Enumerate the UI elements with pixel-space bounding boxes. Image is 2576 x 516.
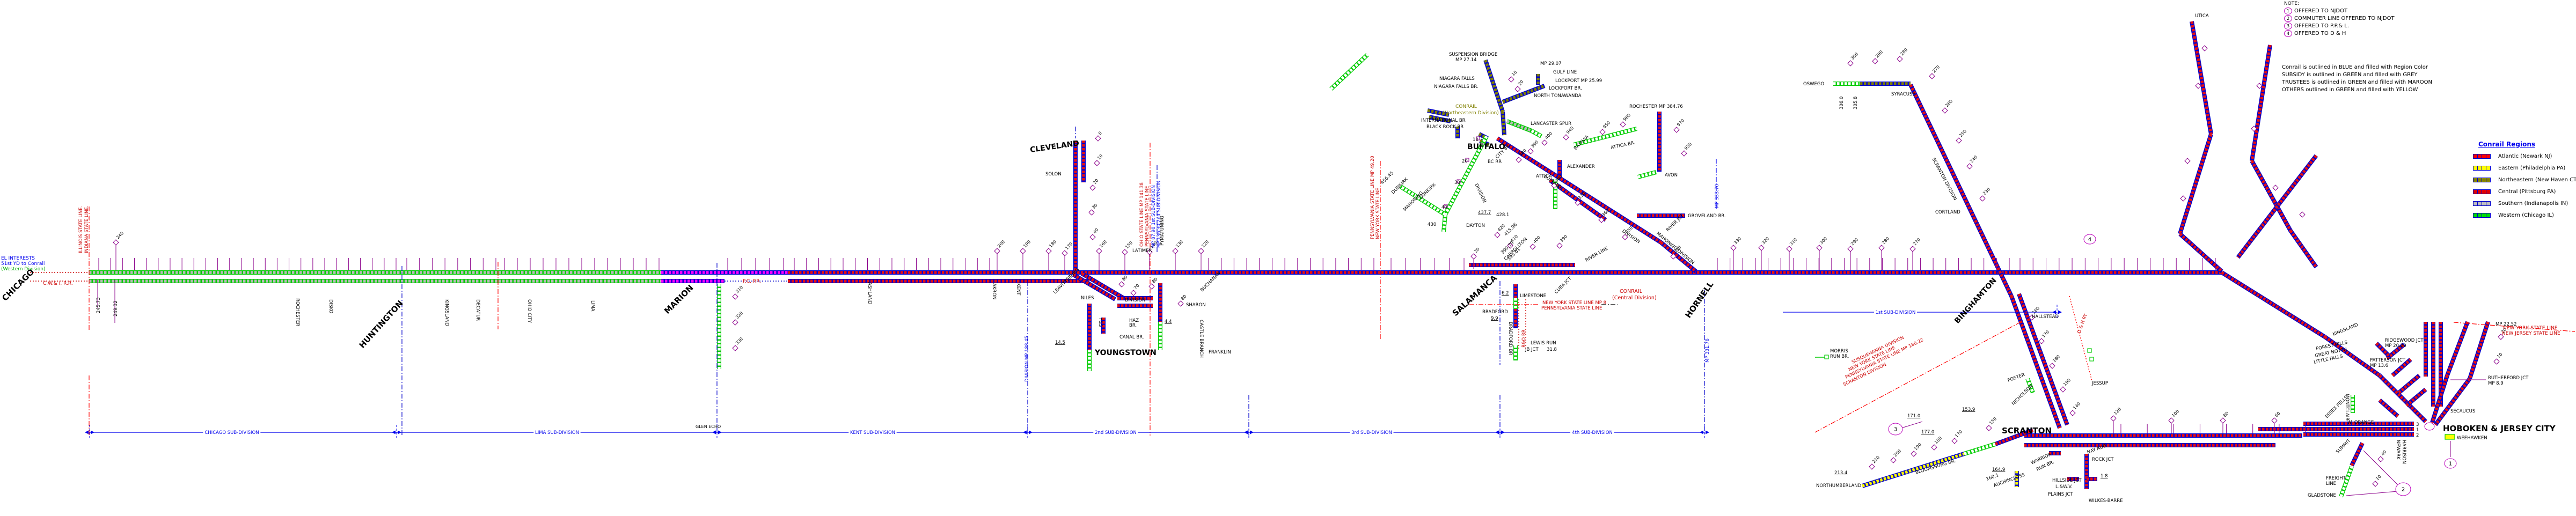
milepost-label: 20 bbox=[1092, 178, 1100, 186]
milepost-diamond bbox=[1471, 254, 1476, 259]
milepost-diamond bbox=[1891, 458, 1896, 463]
milepost-label: 330 bbox=[1733, 236, 1742, 245]
map-label: 177.0 bbox=[1921, 430, 1934, 435]
milepost-diamond bbox=[2050, 363, 2055, 368]
map-label: HORNELL bbox=[1684, 279, 1716, 320]
terminal-box bbox=[2090, 357, 2094, 361]
milepost-diamond bbox=[1869, 464, 1875, 469]
milepost-label: 40 bbox=[1092, 227, 1100, 235]
milepost-label: 390 bbox=[1530, 139, 1539, 149]
milepost-label: 180 bbox=[2052, 354, 2061, 363]
milepost-label: 230 bbox=[1982, 187, 1991, 196]
map-label: 245.73 bbox=[96, 297, 101, 313]
legend-item: Southern (Indianapolis IN) bbox=[2473, 201, 2576, 207]
map-label: AVON bbox=[1665, 173, 1678, 178]
milepost-label: 960 bbox=[1622, 113, 1631, 122]
milepost-label: 180 bbox=[1934, 436, 1943, 445]
map-label: ILLINOIS STATE LINE. bbox=[78, 206, 84, 253]
rail-line bbox=[2399, 375, 2419, 393]
map-label: 20 bbox=[1462, 159, 1468, 164]
milepost-diamond bbox=[2185, 158, 2190, 164]
map-label: NICHOLSON bbox=[2011, 384, 2034, 407]
map-label: NORTH TONAWANDA bbox=[1534, 93, 1582, 99]
milepost-diamond bbox=[2060, 387, 2066, 392]
milepost-diamond bbox=[1620, 122, 1626, 127]
notes-list: 1OFFERED TO NJDOT2COMMUTER LINE OFFERED … bbox=[2284, 8, 2395, 37]
milepost-label: 10 bbox=[1096, 153, 1104, 161]
milepost-label: 290 bbox=[1850, 237, 1859, 246]
map-label: 6.2 bbox=[1502, 291, 1509, 296]
milepost-label: 190 bbox=[1913, 442, 1922, 451]
milepost-label: 200 bbox=[997, 239, 1006, 248]
legend-block: Conrail Regions Atlantic (Newark NJ)East… bbox=[2473, 141, 2576, 224]
terminal-box bbox=[2088, 349, 2091, 352]
map-label: 160.1 bbox=[1986, 473, 2000, 482]
map-label: FRANKLIN bbox=[1209, 350, 1231, 355]
milepost-label: 250 bbox=[1958, 129, 1967, 138]
map-label: BLACK ROCK BR bbox=[1426, 124, 1463, 130]
map-label: WEEHAWKEN bbox=[2457, 436, 2487, 441]
map-label: (Western Division) bbox=[1, 267, 45, 272]
map-label: MP 331.76 bbox=[1705, 338, 1710, 363]
milepost-label: 300 bbox=[1850, 51, 1859, 61]
map-label: CLEVELAND bbox=[1029, 139, 1080, 154]
legend-item: Central (Pittsburg PA) bbox=[2473, 189, 2576, 195]
note-ref-circle bbox=[2425, 423, 2434, 430]
map-label: MP 333.70 bbox=[1715, 184, 1720, 208]
milepost-diamond bbox=[1563, 135, 1569, 140]
map-label: NILES bbox=[1081, 296, 1094, 301]
rail-map: 2402001901801701601501401301200102030403… bbox=[0, 0, 2576, 516]
map-label: OHIO CITY bbox=[526, 299, 532, 323]
map-label: 14.5 bbox=[1055, 340, 1065, 345]
note-text: OFFERED TO D & H bbox=[2294, 31, 2346, 36]
rail-line bbox=[1485, 60, 1503, 112]
map-label: MP 87.90 1st SUB-DIVISION bbox=[1151, 185, 1157, 248]
map-label: NIAGARA FALLS bbox=[1439, 76, 1475, 82]
map-label: ATTICA BR. bbox=[1611, 140, 1636, 150]
milepost-label: 400 bbox=[1544, 131, 1553, 140]
milepost-label: 320 bbox=[1761, 236, 1770, 245]
milepost-label: 190 bbox=[1022, 239, 1031, 248]
milepost-label: 120 bbox=[2113, 407, 2122, 416]
milepost-label: 950 bbox=[1602, 120, 1611, 129]
milepost-diamond bbox=[113, 240, 119, 245]
terminal-box bbox=[2445, 434, 2455, 439]
legend-swatch bbox=[2473, 154, 2491, 159]
milepost-diamond bbox=[2039, 338, 2044, 344]
milepost-diamond bbox=[2273, 185, 2278, 190]
milepost-label: 30 bbox=[1091, 203, 1099, 210]
milepost-diamond bbox=[1198, 248, 1204, 254]
legend-list: Atlantic (Newark NJ)Eastern (Philadelphi… bbox=[2473, 153, 2576, 218]
map-label: JB JCT bbox=[1525, 347, 1539, 352]
map-label: DIVISION bbox=[1473, 183, 1487, 204]
map-label: 437.7 bbox=[1478, 210, 1491, 216]
map-label: DISKO bbox=[328, 299, 333, 314]
map-label: SCRANTON bbox=[2002, 426, 2052, 436]
map-label: JESSUP bbox=[2091, 381, 2108, 386]
map-label: NEW YORK STATE LINE MP 8 bbox=[1542, 300, 1606, 306]
milepost-diamond bbox=[1090, 185, 1095, 190]
key-line: OTHERS outlined in GREEN and filled with… bbox=[2282, 86, 2432, 94]
milepost-diamond bbox=[1094, 160, 1100, 166]
milepost-diamond bbox=[733, 345, 738, 351]
milepost-diamond bbox=[1090, 234, 1095, 240]
milepost-diamond bbox=[1956, 138, 1962, 143]
map-label: KINGSLAND bbox=[444, 299, 449, 327]
milepost-label: 130 bbox=[1175, 239, 1184, 248]
map-label: HOBOKEN & JERSEY CITY bbox=[2443, 424, 2556, 433]
map-label: NEWARK bbox=[2395, 440, 2401, 460]
milepost-label: 160 bbox=[1099, 239, 1108, 248]
milepost-label: 300 bbox=[1819, 236, 1828, 245]
map-label: C.W.& I. R.R. bbox=[43, 281, 73, 286]
map-label: UTICA bbox=[2195, 13, 2209, 19]
milepost-label: 200 bbox=[1893, 448, 1902, 458]
map-label: BC RR bbox=[1488, 159, 1502, 165]
map-label: NEW JERSEY STATE LINE bbox=[2502, 331, 2560, 336]
map-label: CONRAIL bbox=[1620, 289, 1643, 294]
map-label: (Northeastern Division) bbox=[1443, 110, 1499, 116]
milepost-label: 70 bbox=[1133, 283, 1140, 291]
notes-title: NOTE: bbox=[2284, 1, 2395, 6]
milepost-diamond bbox=[1787, 246, 1792, 252]
map-label: LEWIS RUN bbox=[1531, 341, 1556, 346]
map-label: 213.4 bbox=[1834, 470, 1847, 476]
map-label: SYRACUSE bbox=[1891, 92, 1915, 97]
legend-label: Atlantic (Newark NJ) bbox=[2498, 153, 2552, 159]
note-ref-number: 4 bbox=[2088, 237, 2091, 243]
milepost-label: 190 bbox=[2062, 378, 2072, 387]
map-label: FOSTER bbox=[2007, 372, 2026, 384]
thin-line bbox=[2363, 451, 2399, 486]
rail-line bbox=[2238, 156, 2316, 257]
milepost-label: 10 bbox=[1511, 70, 1518, 77]
milepost-label: 10 bbox=[2496, 352, 2504, 359]
milepost-label: 140 bbox=[2072, 401, 2081, 410]
milepost-diamond bbox=[1020, 248, 1026, 254]
map-label: SUSPENSION BRIDGE bbox=[1449, 52, 1497, 57]
milepost-label: 20 bbox=[1517, 79, 1525, 87]
legend-label: Eastern (Philadelphia PA) bbox=[2498, 165, 2565, 171]
milepost-diamond bbox=[1911, 451, 1916, 456]
dotted-line bbox=[2069, 296, 2092, 381]
milepost-label: 0 bbox=[1097, 130, 1103, 136]
map-label: CONRAIL bbox=[1455, 104, 1477, 109]
milepost-diamond bbox=[1817, 245, 1822, 250]
legend-item: Northeastern (New Haven CT) bbox=[2473, 177, 2576, 183]
map-label: ROCK JCT bbox=[2092, 457, 2114, 462]
map-label: 10 bbox=[1473, 137, 1479, 143]
milepost-label: 280 bbox=[1899, 47, 1908, 56]
milepost-diamond bbox=[1096, 248, 1102, 254]
map-label: 51st YD to Conrail bbox=[1, 261, 45, 267]
legend-swatch bbox=[2473, 213, 2491, 218]
milepost-label: 170 bbox=[1064, 241, 1073, 250]
map-label: CHICAGO bbox=[0, 267, 36, 303]
milepost-label: 400 bbox=[1532, 235, 1541, 244]
map-label: MP 136.30 2nd SUB-DIVISION bbox=[1157, 181, 1162, 248]
map-label: ALEXANDER bbox=[1567, 164, 1595, 169]
milepost-diamond bbox=[1149, 284, 1154, 289]
map-label: INTERNATIONAL BR. bbox=[1421, 118, 1467, 123]
rail-line bbox=[2019, 294, 2067, 425]
note-item: 2COMMUTER LINE OFFERED TO NJDOT bbox=[2284, 15, 2395, 22]
note-ref-number: 2 bbox=[2402, 487, 2405, 493]
map-label: OHIO STATE LINE MP 141.38 bbox=[1139, 182, 1145, 247]
subdivision-label: 2nd SUB-DIVISION bbox=[1095, 430, 1137, 436]
milepost-diamond bbox=[2202, 46, 2207, 51]
note-number-circle: 1 bbox=[2284, 8, 2292, 14]
legend-label: Northeastern (New Haven CT) bbox=[2498, 177, 2576, 183]
map-label: 2 bbox=[2416, 433, 2419, 438]
milepost-label: 80 bbox=[1151, 277, 1159, 284]
map-label: NIAGARA FALLS BR. bbox=[1434, 84, 1479, 90]
map-label: Y&S bbox=[1097, 317, 1103, 327]
note-number-circle: 3 bbox=[2284, 23, 2292, 30]
key-line: TRUSTEES is outlined in GREEN and filled… bbox=[2282, 79, 2432, 86]
thin-line bbox=[2346, 491, 2398, 496]
legend-label: Central (Pittsburg PA) bbox=[2498, 189, 2556, 195]
milepost-diamond bbox=[1929, 73, 1935, 79]
map-label: SUMMIT bbox=[2335, 438, 2352, 455]
milepost-diamond bbox=[1872, 58, 1878, 64]
legend-swatch bbox=[2473, 189, 2491, 194]
key-line: Conrail is outlined in BLUE and filled w… bbox=[2282, 64, 2432, 71]
map-label: 456.45 bbox=[1380, 171, 1395, 186]
milepost-label: 170 bbox=[2041, 329, 2050, 338]
map-label: LOCKPORT MP 25.99 bbox=[1555, 78, 1602, 84]
map-label: RIVER LINE bbox=[1585, 246, 1609, 263]
map-label: BRADFORD bbox=[1482, 309, 1508, 315]
milepost-label: 240 bbox=[1969, 154, 1978, 164]
map-label: MP 29.07 bbox=[1540, 61, 1562, 67]
milepost-diamond bbox=[1910, 246, 1915, 252]
map-label: CASTLE BRANCH bbox=[1198, 320, 1204, 358]
map-label: D & H RY bbox=[2076, 313, 2089, 334]
milepost-diamond bbox=[1681, 151, 1687, 156]
map-label: 1.8 bbox=[2101, 474, 2108, 479]
milepost-label: 180 bbox=[1048, 239, 1057, 248]
milepost-diamond bbox=[1980, 196, 1985, 201]
map-label: ASHLAND bbox=[867, 282, 872, 305]
milepost-label: 330 bbox=[735, 336, 744, 345]
map-label: 430 bbox=[1428, 222, 1436, 227]
map-label: B&O RR bbox=[1521, 329, 1527, 348]
map-label: HARRISON bbox=[2401, 440, 2406, 464]
note-number-circle: 4 bbox=[2284, 30, 2292, 37]
map-label: BINGHAMTON bbox=[1953, 276, 1999, 326]
map-label: BRADFORD BR bbox=[1507, 322, 1513, 355]
map-label: SHARON bbox=[1186, 303, 1206, 308]
map-label: MP 20.20 bbox=[2385, 343, 2406, 349]
map-label: KINGSLAND bbox=[2332, 322, 2359, 337]
map-label: NEW YORK STATE LINE bbox=[2503, 326, 2558, 331]
milepost-diamond bbox=[2180, 196, 2186, 201]
rail-line bbox=[2341, 467, 2352, 497]
milepost-label: 320 bbox=[735, 311, 744, 320]
map-label: MARION bbox=[662, 283, 696, 316]
map-label: PLAINS JCT bbox=[2048, 492, 2073, 497]
map-label: YOUNGSTOWN bbox=[1094, 349, 1157, 357]
map-label: 171.0 bbox=[1907, 414, 1920, 419]
map-label: DAYTON bbox=[1466, 223, 1485, 228]
map-label: MP 27.14 bbox=[1455, 57, 1477, 63]
map-label: LOCKPORT BR. bbox=[1549, 86, 1582, 91]
milepost-label: 270 bbox=[1931, 64, 1941, 73]
milepost-diamond bbox=[2272, 418, 2277, 423]
milepost-diamond bbox=[1674, 127, 1679, 132]
map-label: 40 bbox=[1441, 205, 1447, 210]
map-label: 9.9 bbox=[1491, 316, 1498, 321]
milepost-diamond bbox=[1897, 56, 1902, 62]
key-line: SUBSIDY is outlined in GREEN and filled … bbox=[2282, 71, 2432, 79]
note-ref-number: 1 bbox=[2449, 461, 2452, 467]
milepost-diamond bbox=[1119, 282, 1124, 287]
map-label: PENNSYLVANIA STATE LINE bbox=[1541, 306, 1602, 311]
subdivision-label: 1st SUB-DIVISION bbox=[1876, 310, 1916, 315]
map-label: 31.8 bbox=[1547, 347, 1557, 352]
map-label: LINE bbox=[2326, 481, 2336, 486]
map-label: 30 bbox=[1454, 180, 1460, 186]
milepost-diamond bbox=[1967, 164, 1972, 169]
map-label: MP 8.9 bbox=[2488, 381, 2504, 386]
milepost-diamond bbox=[1509, 77, 1514, 82]
milepost-label: 210 bbox=[1871, 455, 1880, 464]
map-label: LIMESTONE bbox=[1520, 293, 1546, 299]
milepost-label: 60 bbox=[2274, 411, 2281, 418]
milepost-diamond bbox=[1557, 243, 1562, 248]
map-label: P.C. RR. bbox=[743, 279, 761, 284]
map-label: 428.1 bbox=[1496, 212, 1509, 218]
legend-item: Eastern (Philadelphia PA) bbox=[2473, 165, 2576, 171]
map-label: MAHONING DIVISION bbox=[1655, 231, 1695, 266]
map-label: ATTICA bbox=[1536, 174, 1552, 179]
milepost-diamond bbox=[1178, 301, 1183, 306]
legend-swatch bbox=[2473, 201, 2491, 206]
map-label: WILKES-BARRE bbox=[2089, 498, 2123, 504]
milepost-diamond bbox=[1095, 136, 1101, 141]
map-label: BR. bbox=[1129, 323, 1137, 328]
milepost-label: 940 bbox=[1565, 126, 1575, 135]
legend-label: Southern (Indianapolis IN) bbox=[2498, 201, 2568, 207]
map-label: DECATUR bbox=[475, 299, 480, 321]
map-label: MP 13.6 bbox=[2370, 363, 2388, 368]
map-label: DIVISION MP 188.45 bbox=[1024, 336, 1030, 382]
milepost-diamond bbox=[1516, 157, 1521, 163]
map-label: GLEN ECHO bbox=[696, 424, 721, 429]
map-label: GULF LINE bbox=[1553, 70, 1577, 75]
map-label: PENNSYLVANIA STATE LINE MP 49.20 bbox=[1370, 156, 1375, 239]
legend-label: Western (Chicago IL) bbox=[2498, 212, 2554, 218]
thin-line bbox=[1901, 422, 1922, 428]
note-item: 1OFFERED TO NJDOT bbox=[2284, 8, 2395, 14]
map-label: HILLSIDE JCT bbox=[2052, 478, 2082, 483]
milepost-label: 80 bbox=[1180, 294, 1188, 301]
map-label: 153.9 bbox=[1962, 407, 1975, 412]
milepost-label: 160 bbox=[2031, 306, 2040, 315]
map-label: CANAL BR. bbox=[1119, 335, 1144, 340]
milepost-label: 240 bbox=[115, 231, 125, 240]
milepost-diamond bbox=[2378, 456, 2383, 462]
milepost-label: 150 bbox=[1988, 416, 1997, 425]
map-label: ROCHESTER MP 384.76 bbox=[1629, 104, 1683, 109]
milepost-diamond bbox=[733, 294, 738, 299]
milepost-diamond bbox=[1600, 129, 1605, 135]
milepost-label: 60 bbox=[1121, 275, 1129, 282]
milepost-label: 80 bbox=[2222, 411, 2230, 418]
milepost-label: 930 bbox=[1684, 142, 1693, 151]
milepost-diamond bbox=[1542, 140, 1547, 145]
map-label: 305.8 bbox=[1853, 97, 1858, 109]
map-label: NEW YORK STATE LINE bbox=[1375, 188, 1381, 239]
map-label: AKRON bbox=[991, 283, 997, 299]
milepost-diamond bbox=[1046, 248, 1051, 254]
map-label: DIVISION bbox=[1125, 298, 1145, 303]
note-text: COMMUTER LINE OFFERED TO NJDOT bbox=[2294, 16, 2395, 21]
map-label: 249.32 bbox=[113, 300, 119, 316]
milepost-label: 290 bbox=[1875, 49, 1884, 58]
milepost-label: 280 bbox=[1881, 236, 1890, 245]
milepost-diamond bbox=[2196, 83, 2201, 89]
milepost-diamond bbox=[1089, 210, 1094, 215]
map-label: KENT bbox=[1015, 283, 1021, 296]
milepost-label: 170 bbox=[1954, 429, 1963, 438]
subdivision-label: CHICAGO SUB-DIVISION bbox=[204, 430, 259, 436]
map-label: PENNSYLVANIA STATE LINE bbox=[1145, 186, 1150, 247]
map-label: HALLSTEAD bbox=[2032, 314, 2059, 320]
map-label: 1 bbox=[2416, 427, 2419, 433]
note-text: OFFERED TO P.P.& L. bbox=[2294, 23, 2349, 29]
milepost-label: 390 bbox=[1559, 234, 1568, 243]
milepost-label: 420 bbox=[1497, 223, 1506, 232]
note-item: 3OFFERED TO P.P.& L. bbox=[2284, 23, 2395, 30]
notes-block: NOTE: 1OFFERED TO NJDOT2COMMUTER LINE OF… bbox=[2284, 1, 2395, 38]
map-label: 3 bbox=[2416, 422, 2419, 427]
milepost-label: 310 bbox=[1789, 237, 1798, 246]
rail-line bbox=[1964, 444, 1995, 454]
subdivision-label: LIMA SUB-DIVISION bbox=[535, 430, 579, 436]
map-label: BUFFALO bbox=[1467, 143, 1505, 151]
map-label: (Central Division) bbox=[1612, 295, 1657, 301]
map-label: LANCASTER SPUR bbox=[1531, 121, 1571, 127]
milepost-diamond bbox=[994, 248, 1000, 254]
milepost-diamond bbox=[1131, 290, 1136, 296]
map-label: RUN BR. bbox=[1830, 354, 1849, 359]
map-label: 164.9 bbox=[1992, 467, 2005, 473]
map-label: HUNTINGTON bbox=[357, 298, 405, 350]
map-label: 4.4 bbox=[1165, 319, 1172, 325]
milepost-diamond bbox=[1848, 246, 1853, 252]
map-label: INDIANA STATE LINE. bbox=[84, 205, 90, 253]
map-label: RUTHERFORD JCT bbox=[2488, 375, 2529, 381]
map-label: NORTHUMBERLAND bbox=[1816, 483, 1862, 489]
map-label: CORTLAND bbox=[1935, 210, 1960, 215]
map-label: GROVELAND BR. bbox=[1688, 213, 1726, 219]
map-label: RIDGEWOOD JCT bbox=[2385, 338, 2424, 343]
subdivision-label: 3rd SUB-DIVISION bbox=[1351, 430, 1392, 436]
milepost-label: 970 bbox=[1676, 118, 1685, 127]
map-label: LATIMER bbox=[1132, 248, 1152, 254]
milepost-diamond bbox=[2373, 481, 2378, 486]
map-label: 306.0 bbox=[1839, 97, 1845, 109]
milepost-label: 40 bbox=[2380, 449, 2388, 457]
milepost-label: 120 bbox=[1201, 239, 1210, 248]
milepost-diamond bbox=[1731, 245, 1736, 250]
milepost-diamond bbox=[2111, 416, 2116, 421]
legend-title: Conrail Regions bbox=[2478, 141, 2576, 148]
